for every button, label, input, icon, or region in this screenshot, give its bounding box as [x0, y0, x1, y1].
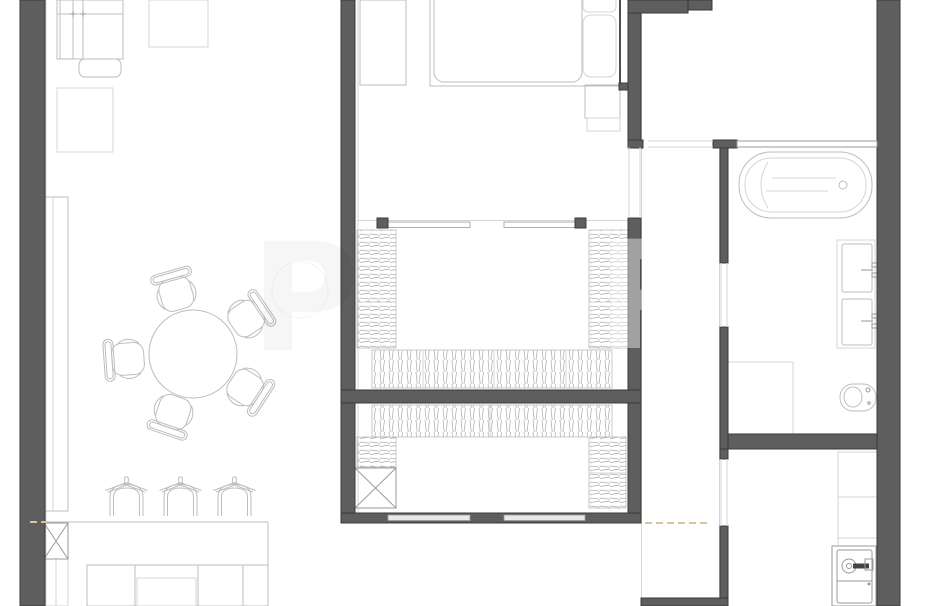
shelving-unit [838, 452, 877, 546]
wall-foot [628, 140, 643, 148]
wardrobe-bottom-row [372, 350, 612, 388]
top-right-opening [648, 141, 713, 147]
svg-text:P: P [598, 210, 708, 384]
handle [853, 564, 869, 569]
sliding-door-track [357, 221, 628, 228]
media-console [45, 197, 68, 511]
wall-closet-bottom [341, 513, 641, 523]
dining-chair-5 [103, 337, 146, 382]
wardrobe [360, 0, 406, 85]
kitchen-island [87, 565, 268, 606]
room-entry-hall [832, 452, 877, 606]
wall-bath-top-seg [713, 140, 737, 148]
dining-chair-1 [149, 265, 200, 315]
side-table [149, 0, 208, 47]
bathtub [739, 152, 872, 218]
wall-top-stub [628, 0, 688, 13]
room-closet-lower [355, 405, 626, 508]
wall-notch [619, 83, 628, 90]
double-sink-vanity [837, 240, 877, 348]
wall-bath-bottom [728, 434, 877, 449]
bar-stool-2 [160, 477, 202, 516]
cooktop [137, 578, 196, 606]
room-living-dining-kitchen [44, 0, 278, 606]
wall-bath-left-b [720, 327, 728, 449]
wall-right-outer [877, 0, 900, 606]
sink-2 [842, 299, 872, 345]
wardrobe-top-row [372, 405, 612, 437]
double-bed [430, 0, 620, 86]
floor-plan-drawing: P P [0, 0, 926, 606]
bar-stool-1 [106, 477, 148, 516]
bathroom-door-opening [721, 263, 727, 327]
bar-stool-3 [214, 477, 256, 516]
wall-bottom-stub [641, 598, 728, 606]
wardrobe-left-small [357, 437, 396, 467]
wall-door-stub-b [575, 218, 586, 228]
corner-sofa [57, 0, 123, 77]
bedroom-door-opening [629, 147, 640, 218]
room-closet-upper [357, 230, 628, 388]
drain [839, 181, 847, 189]
wall-door-stub-a [377, 218, 388, 228]
wall-entry-left-a [720, 449, 728, 459]
svg-text:P: P [250, 212, 360, 386]
entry-door-opening [721, 459, 727, 526]
toilet [840, 384, 876, 411]
nightstand [585, 85, 620, 131]
structural-column-kitchen [44, 523, 68, 559]
wardrobe-left [357, 230, 396, 348]
room-bedroom [357, 0, 628, 228]
wall-closet-divider [341, 390, 641, 403]
wall-top-stub-ext [688, 0, 712, 10]
wall-edge-line [620, 0, 628, 90]
pillow-1 [583, 0, 616, 12]
armchair-square [57, 88, 113, 152]
glass-partition [737, 141, 877, 147]
wall-entry-left-b [720, 526, 728, 606]
pillow-2 [583, 15, 616, 77]
kitchen-counter [44, 522, 268, 606]
round-dining-table [149, 310, 237, 398]
wall-left-outer [20, 0, 45, 606]
ottoman [79, 59, 121, 77]
wall-bath-left-a [720, 148, 728, 263]
sink-1 [842, 244, 872, 292]
structural-column-closet [355, 468, 396, 508]
floor-plan: P P [0, 0, 926, 606]
room-bathroom [728, 152, 877, 436]
wall-bedroom-right-upper [628, 0, 641, 140]
washing-machine [832, 546, 876, 606]
shower-tray [728, 362, 793, 436]
